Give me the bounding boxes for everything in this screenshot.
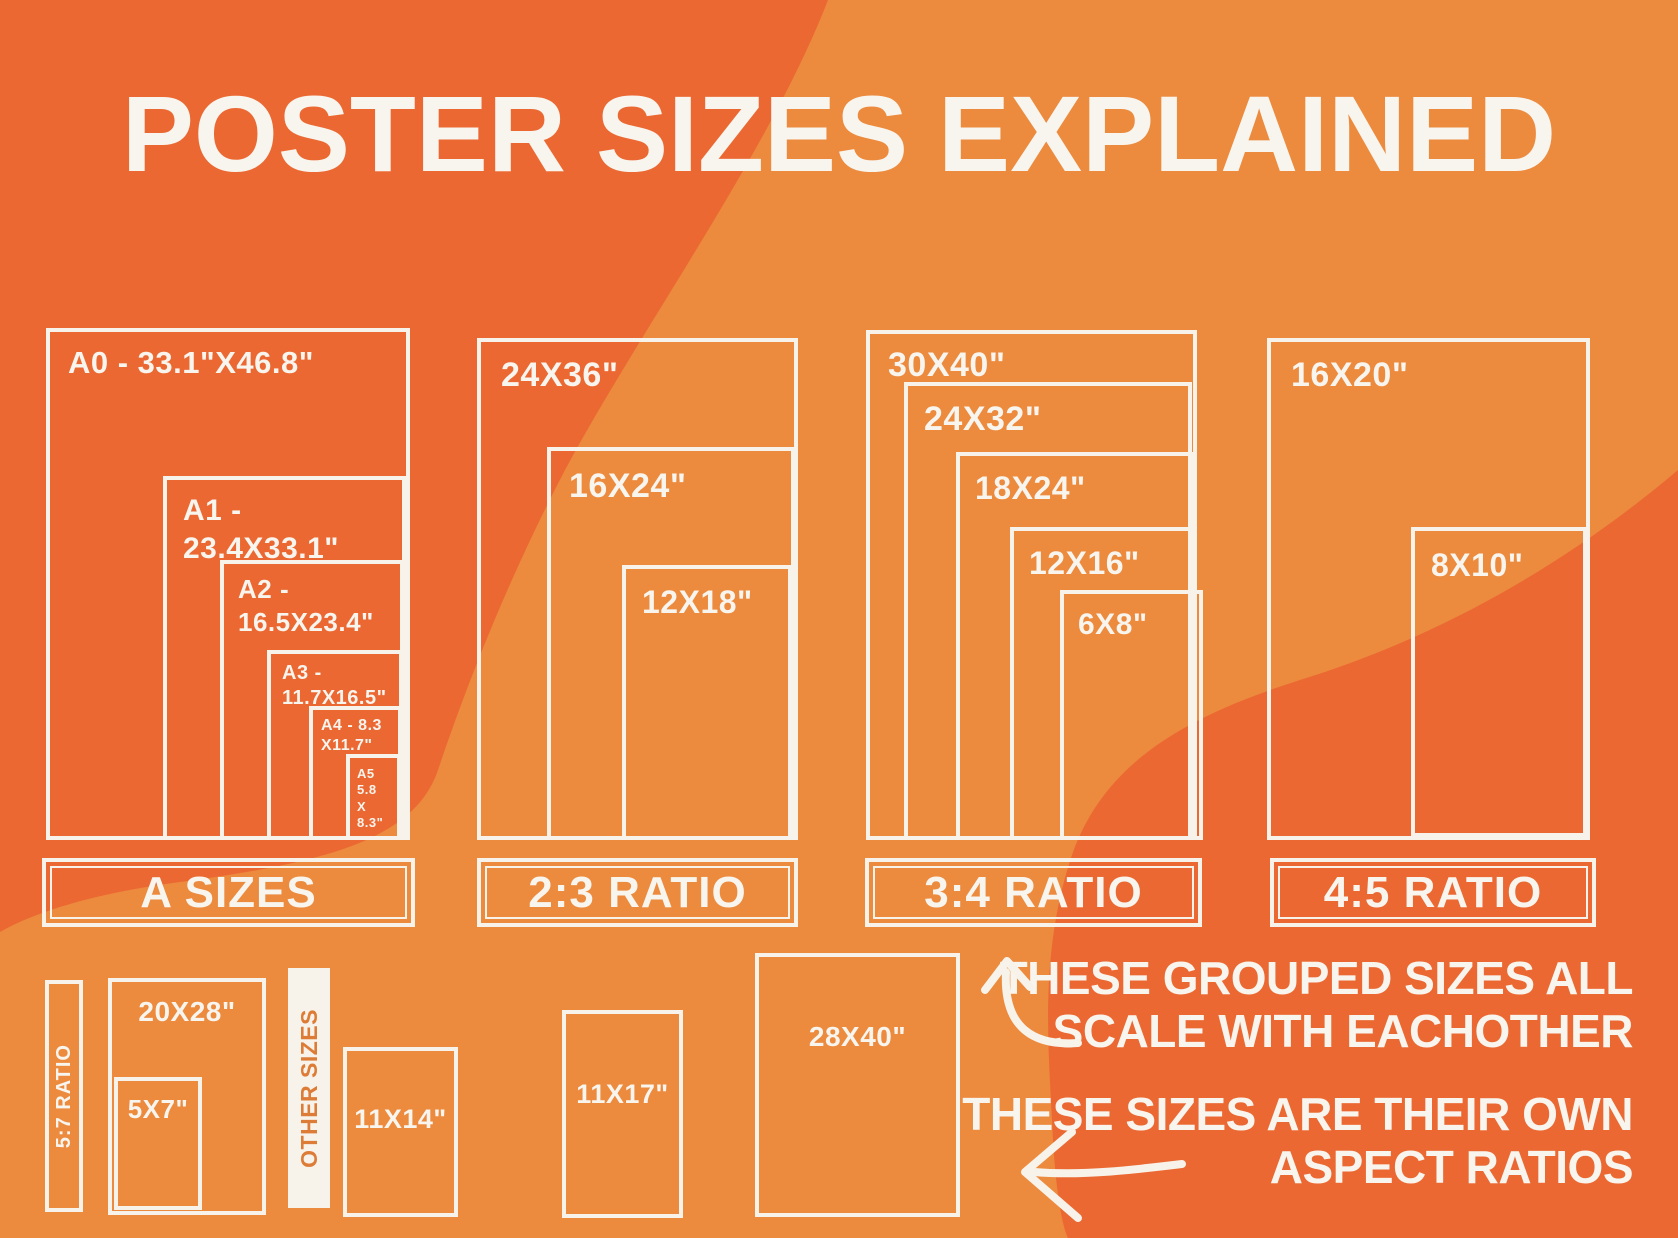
poster-box-16x24-label: 16X24" [569,465,686,508]
poster-box-5x7-label: 5X7" [118,1093,198,1126]
poster-box-12x18: 12X18" [622,565,792,840]
poster-box-11x17: 11X17" [562,1010,683,1218]
page-title: POSTER SIZES EXPLAINED [0,80,1678,188]
poster-box-12x16-label: 12X16" [1029,543,1140,583]
poster-box-24x36-label: 24X36" [501,354,618,397]
poster-box-8x10-label: 8X10" [1431,545,1523,585]
group-label-a-sizes: A SIZES [42,858,415,927]
other-sizes-divider-bar: OTHER SIZES [288,968,330,1208]
group-label-4-5-ratio: 4:5 RATIO [1270,858,1596,927]
poster-box-11x14: 11X14" [343,1047,458,1217]
poster-box-12x18-label: 12X18" [642,582,753,622]
group-label-3-4-ratio-text: 3:4 RATIO [924,868,1142,918]
poster-box-a0-label: A0 - 33.1"X46.8" [68,344,314,383]
group-label-2-3-ratio: 2:3 RATIO [477,858,798,927]
poster-box-11x17-label: 11X17" [566,1078,679,1112]
poster-box-8x10: 8X10" [1411,527,1587,837]
own-ratio-note: THESE SIZES ARE THEIR OWN ASPECT RATIOS [962,1088,1633,1194]
poster-box-a5: A5 5.8 X 8.3" [346,754,401,840]
poster-box-a2-label: A2 - 16.5X23.4" [238,573,400,638]
poster-box-18x24-label: 18X24" [975,468,1086,508]
poster-box-a4-label: A4 - 8.3 X11.7" [321,716,382,756]
poster-box-6x8-label: 6X8" [1078,606,1148,644]
poster-box-28x40-label: 28X40" [759,1019,956,1054]
poster-box-a3-label: A3 - 11.7X16.5" [282,661,399,711]
grouped-sizes-note: THESE GROUPED SIZES ALL SCALE WITH EACHO… [1000,952,1633,1058]
poster-box-a5-label: A5 5.8 X 8.3" [357,766,383,831]
group-label-a-sizes-text: A SIZES [140,868,317,918]
group-label-4-5-ratio-text: 4:5 RATIO [1324,868,1542,918]
poster-box-28x40: 28X40" [755,953,960,1217]
poster-box-11x14-label: 11X14" [347,1103,454,1137]
other-sizes-divider-label: OTHER SIZES [296,1009,323,1168]
poster-box-5x7: 5X7" [114,1077,202,1210]
poster-box-24x32-label: 24X32" [924,398,1041,441]
group-label-2-3-ratio-text: 2:3 RATIO [528,868,746,918]
ratio-sidebar-5-7-label: 5:7 RATIO [53,1044,76,1148]
poster-sizes-infographic: POSTER SIZES EXPLAINED A0 - 33.1"X46.8" … [0,0,1678,1238]
poster-box-30x40-label: 30X40" [888,344,1005,387]
poster-box-20x28-label: 20X28" [112,994,262,1029]
ratio-sidebar-5-7: 5:7 RATIO [45,980,83,1212]
group-label-3-4-ratio: 3:4 RATIO [865,858,1202,927]
poster-box-6x8: 6X8" [1060,590,1203,840]
poster-box-a1-label: A1 - 23.4X33.1" [183,492,402,567]
poster-box-16x20-label: 16X20" [1291,354,1408,397]
